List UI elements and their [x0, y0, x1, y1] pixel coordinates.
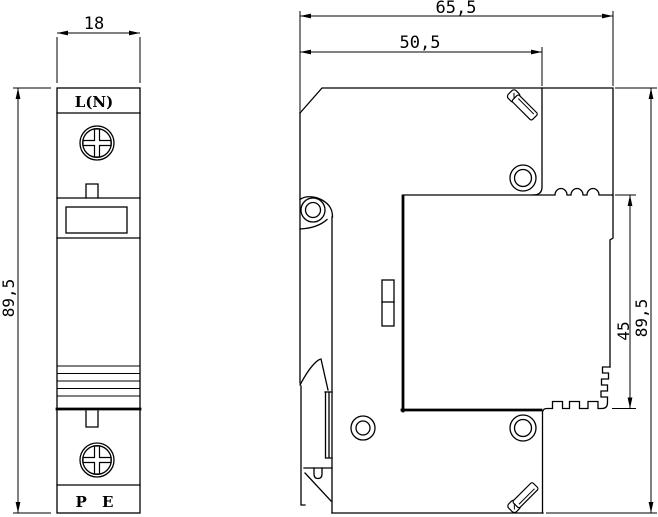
- din-rail-clip: [301, 386, 332, 505]
- terminal-screw-bottom: [80, 443, 114, 477]
- top-slot: [86, 184, 98, 198]
- top-latch: [506, 89, 539, 122]
- dim-front-height: 89,5: [0, 88, 51, 513]
- base-front-wall: [533, 88, 542, 195]
- dim-total-depth-text: 65,5: [436, 0, 477, 18]
- rivet-front-bottom: [510, 415, 536, 441]
- label-window: [66, 207, 127, 233]
- bottom-latch: [507, 481, 540, 514]
- module-side-clip: [382, 280, 394, 326]
- din-clip-lever: [300, 359, 332, 392]
- drawing-canvas: L(N) P E 18 89,5: [0, 0, 658, 517]
- din-clip-slider: [326, 392, 333, 458]
- module-top-edge: [403, 189, 613, 195]
- rivet-front-top: [510, 165, 536, 191]
- vent-lines: [57, 366, 140, 409]
- dim-base-depth: 50,5: [300, 33, 542, 86]
- rivet-back-bottom: [351, 416, 375, 440]
- front-view: L(N) P E: [57, 88, 140, 513]
- side-outline-top: [300, 88, 613, 367]
- side-view: [300, 88, 613, 514]
- dim-base-depth-text: 50,5: [400, 33, 441, 53]
- bottom-slot: [86, 411, 98, 427]
- top-terminal-label: L(N): [75, 93, 113, 111]
- dim-module-height-text: 45: [614, 321, 633, 340]
- clip-spring-hook: [314, 468, 322, 479]
- dim-front-width-text: 18: [84, 14, 104, 34]
- technical-drawing: L(N) P E 18 89,5: [0, 0, 658, 517]
- dim-total-depth: 65,5: [300, 0, 613, 111]
- side-front-castellation: [543, 367, 611, 513]
- rivet-back-top: [301, 198, 325, 222]
- dim-side-height: 89,5: [546, 88, 657, 513]
- dim-front-width: 18: [57, 14, 140, 83]
- bottom-terminal-label: P E: [76, 493, 119, 511]
- terminal-screw-top: [80, 126, 114, 160]
- dim-side-height-text: 89,5: [632, 299, 651, 338]
- dim-front-height-text: 89,5: [0, 279, 18, 318]
